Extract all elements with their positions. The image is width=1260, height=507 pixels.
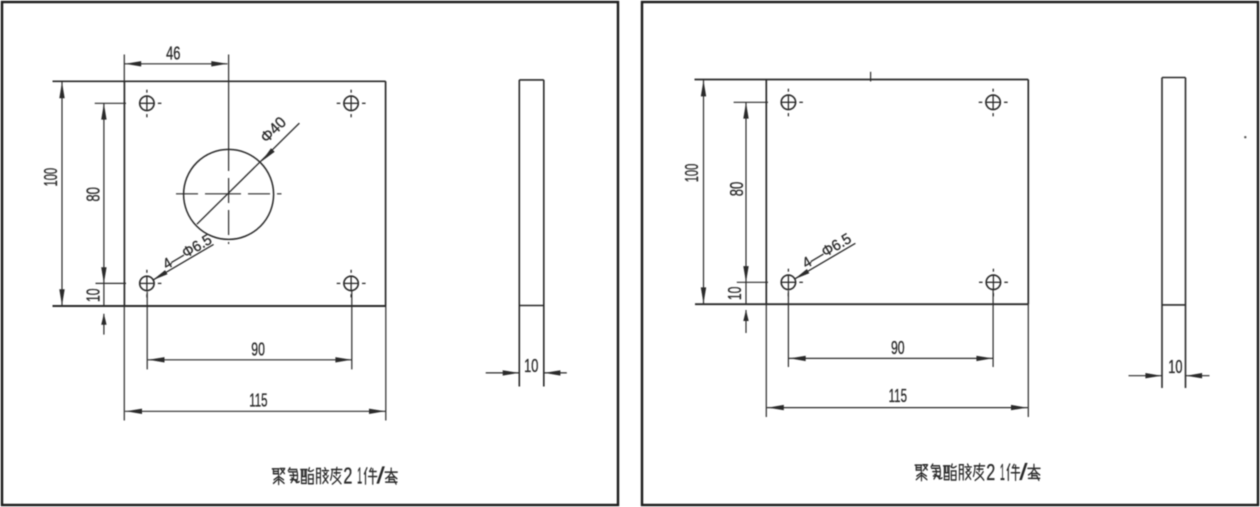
svg-text:10: 10 — [82, 289, 103, 303]
svg-text:80: 80 — [82, 187, 103, 202]
svg-text:/: / — [1019, 459, 1028, 485]
svg-text:90: 90 — [891, 337, 905, 358]
svg-text:/: / — [377, 463, 386, 489]
svg-text:115: 115 — [249, 389, 267, 410]
svg-text:46: 46 — [166, 42, 180, 63]
svg-text:90: 90 — [251, 339, 265, 360]
svg-text:1: 1 — [357, 463, 362, 489]
svg-text:10: 10 — [724, 287, 745, 301]
svg-text:10: 10 — [524, 355, 538, 376]
svg-text:100: 100 — [40, 168, 61, 187]
svg-text:80: 80 — [726, 182, 747, 197]
svg-text:10: 10 — [1168, 356, 1182, 377]
svg-text:2: 2 — [343, 463, 352, 489]
svg-text:115: 115 — [889, 385, 907, 406]
svg-text:1: 1 — [1000, 459, 1005, 485]
svg-text:2: 2 — [986, 459, 995, 485]
svg-text:100: 100 — [681, 164, 702, 183]
